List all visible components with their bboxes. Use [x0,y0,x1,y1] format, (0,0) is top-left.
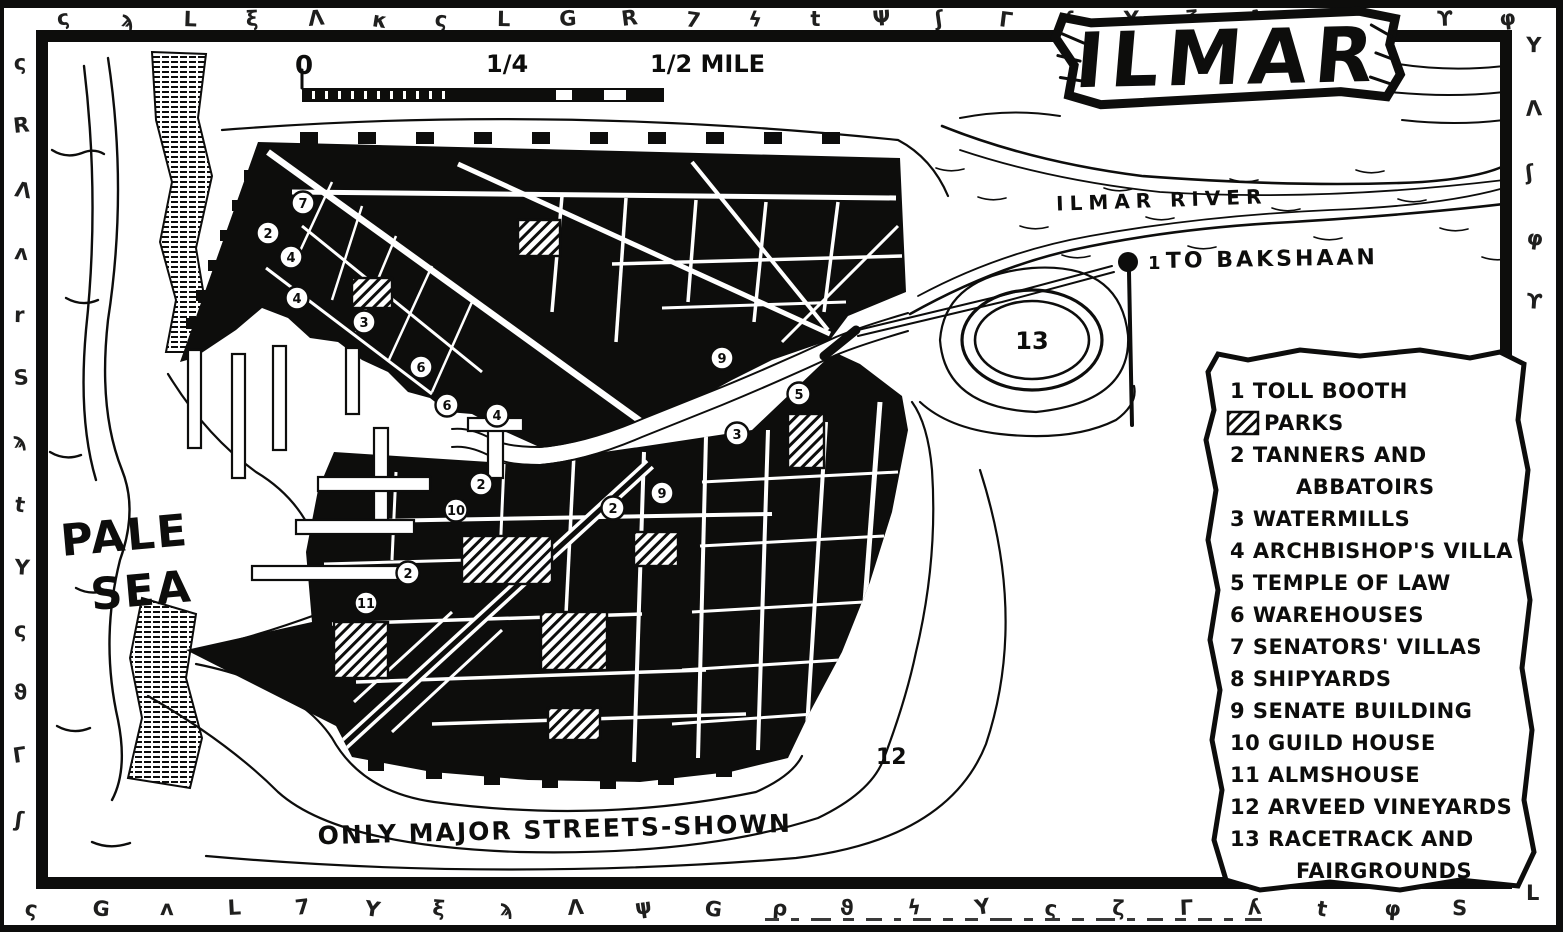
legend-item: PARKS [1264,411,1344,435]
rune-glyph: φ [1384,896,1402,921]
park-area [541,612,607,670]
city-marker-number: 7 [298,197,307,212]
city-marker-number: 5 [794,388,803,403]
map-canvas: 1 13 PALE SEA ILMAR RIVER TO BAKSHAAN ON… [0,0,1563,932]
city-marker-number: 9 [657,487,666,502]
legend-item: 1 TOLL BOOTH [1230,379,1408,403]
rune-glyph: ξ [245,7,258,31]
rune-glyph: R [620,5,639,31]
legend-item: 2 TANNERS AND [1230,443,1427,467]
rune-glyph: ʌ [14,240,30,265]
rune-glyph: L [1526,881,1539,905]
legend-panel: 1 TOLL BOOTHPARKS2 TANNERS ANDABBATOIRS3… [1206,350,1534,890]
credit-dash [1072,918,1084,921]
rune-glyph: S [13,365,29,390]
rune-glyph: Y [13,555,32,580]
rune-glyph: ξ [432,896,446,921]
legend-item: 3 WATERMILLS [1230,507,1410,531]
racetrack-number: 13 [1015,327,1048,355]
city-marker-number: 4 [492,409,501,424]
city-marker-number: 11 [357,597,375,612]
credit-dash [1024,918,1033,921]
rune-glyph: ς [1043,896,1058,921]
legend-item: 7 SENATORS' VILLAS [1230,635,1482,659]
city-marker-number: 3 [732,428,741,443]
credit-dash [1198,918,1212,921]
parks-swatch [1228,412,1258,434]
rune-glyph: ϟ [906,895,922,920]
park-area [462,536,552,584]
rune-glyph: ʌ [160,896,174,920]
credit-dash [791,918,799,921]
rune-glyph: L [227,895,242,920]
park-area [788,414,824,468]
legend-item: 9 SENATE BUILDING [1230,699,1472,723]
city-marker-number: 6 [442,399,451,414]
rune-glyph: G [559,6,577,31]
city-marker-number: 4 [286,251,295,266]
rune-glyph: Ψ [872,6,891,31]
legend-item: 4 ARCHBISHOP'S VILLA [1230,539,1513,563]
credit-dash [811,918,831,921]
rune-glyph: ζ [1112,896,1125,920]
rune-glyph: r [14,303,25,327]
rune-glyph: ς [14,618,26,642]
credit-dash [1096,918,1115,921]
rune-glyph: ϑ [840,896,854,920]
rune-glyph: φ [1525,225,1545,251]
credit-dash [866,918,882,921]
ilmar-map-page: 1 13 PALE SEA ILMAR RIVER TO BAKSHAAN ON… [0,0,1563,932]
rune-glyph: S [1452,896,1468,920]
vineyards-number: 12 [876,745,907,770]
city-marker-number: 10 [447,504,465,519]
city-marker-number: 2 [403,567,412,582]
park-area [352,278,392,308]
rune-glyph: ϒ [1437,6,1455,31]
credit-dash [1045,918,1060,921]
rune-glyph: 7 [294,894,311,920]
page-title: ILMAR [1072,10,1384,105]
rune-glyph: G [92,896,111,921]
rune-glyph: ρ [772,896,788,921]
credit-dash [1147,918,1163,921]
city-marker-number: 4 [292,292,301,307]
city-marker-number: 2 [608,502,617,517]
legend-item: 6 WAREHOUSES [1230,603,1424,627]
scale-half-label: 1/2 MILE [650,50,765,78]
rune-glyph: L [497,7,511,31]
credit-dash [765,918,779,921]
legend-item: 12 ARVEED VINEYARDS [1230,795,1512,819]
rune-glyph: Γ [1179,896,1193,920]
rune-glyph: Y [1525,33,1542,57]
rune-glyph: ϟ [747,7,762,32]
rune-glyph: ϑ [13,680,29,705]
rune-glyph: ϡ [120,7,136,32]
city-marker-number: 9 [717,352,726,367]
rune-glyph: ς [434,7,448,32]
pale-sea-label-line2: SEA [89,561,195,621]
legend-item: 13 RACETRACK AND [1230,827,1474,851]
park-area [518,220,560,256]
credit-dash [1224,918,1233,921]
scale-quarter-label: 1/4 [486,50,528,78]
legend-item: FAIRGROUNDS [1296,859,1472,883]
city-marker-number: 2 [476,478,485,493]
legend-item: 10 GUILD HOUSE [1230,731,1436,755]
legend-item: 11 ALMSHOUSE [1230,763,1420,787]
city-marker-number: 3 [359,316,368,331]
park-area [634,532,678,566]
to-bakshaan-label: TO BAKSHAAN [1166,245,1378,274]
credit-dash [943,918,953,921]
rune-glyph: G [703,896,723,922]
credit-dash [990,918,1012,921]
credit-dash [1245,918,1262,921]
city-marker-number: 6 [416,361,425,376]
rune-glyph: ʎ [1246,895,1262,920]
rune-glyph: φ [1498,5,1517,31]
legend-item: ABBATOIRS [1296,475,1435,499]
rune-glyph: ς [13,51,26,75]
credit-dash [1127,918,1135,921]
credit-dash [843,918,854,921]
toll-booth-dot [1118,252,1138,272]
rune-glyph: Λ [1525,96,1543,121]
rune-glyph: ϡ [500,896,513,920]
park-area [548,708,600,740]
rune-glyph: R [12,112,31,138]
rune-glyph: t [810,7,820,31]
rune-glyph: ψ [633,894,653,920]
rune-glyph: L [183,7,197,31]
credit-dash [1175,918,1186,921]
legend-item: 5 TEMPLE OF LAW [1230,571,1451,595]
park-area [334,622,388,678]
rune-glyph: Λ [307,5,326,31]
legend-item: 8 SHIPYARDS [1230,667,1392,691]
title-banner: ILMAR [1055,10,1401,106]
rune-glyph: ϒ [1526,289,1545,314]
scale-zero-label: 0 [295,51,313,81]
credit-dash [894,918,901,921]
city-marker-number: 2 [263,227,272,242]
credit-dash [913,918,931,921]
toll-booth-number: 1 [1148,253,1161,274]
credit-dash [965,918,978,921]
rune-glyph: Λ [567,895,586,920]
